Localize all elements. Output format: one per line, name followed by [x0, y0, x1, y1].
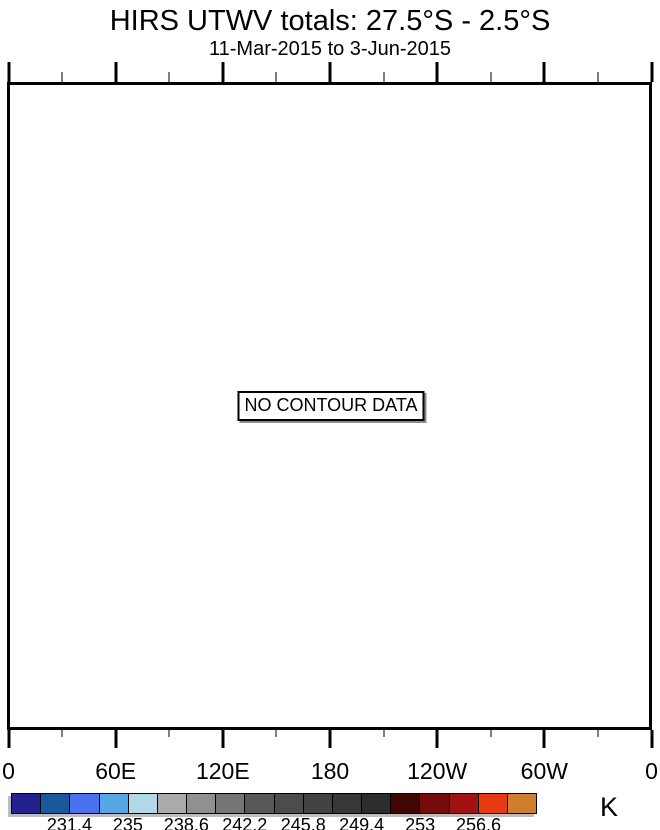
colorbar-tick-label: 231.4 [47, 815, 92, 830]
axis-major-tick [329, 730, 332, 748]
x-axis-tick-label: 120E [196, 758, 250, 785]
colorbar-unit-label: K [600, 792, 618, 823]
plot-page: HIRS UTWV totals: 27.5°S - 2.5°S 11-Mar-… [0, 0, 660, 830]
axis-major-tick [543, 730, 546, 748]
axis-minor-tick [490, 730, 492, 737]
axis-major-tick [329, 62, 332, 82]
colorbar-swatch [303, 793, 333, 814]
colorbar-swatch [478, 793, 508, 814]
axis-major-tick [436, 730, 439, 748]
colorbar-tick-label: 256.6 [456, 815, 501, 830]
x-axis-tick-label: 60W [521, 758, 568, 785]
axis-minor-tick [168, 72, 170, 82]
x-axis-tick-label: 120W [407, 758, 467, 785]
colorbar-swatch [215, 793, 245, 814]
colorbar-swatch [69, 793, 99, 814]
colorbar-swatch [128, 793, 158, 814]
colorbar-swatch [157, 793, 187, 814]
axis-major-tick [543, 62, 546, 82]
colorbar-swatch [244, 793, 274, 814]
colorbar [11, 793, 537, 814]
axis-major-tick [221, 62, 224, 82]
colorbar-labels: 231.4235238.6242.2245.8249.4253256.6 [11, 815, 537, 830]
axis-major-tick [221, 730, 224, 748]
axis-major-tick [7, 62, 10, 82]
colorbar-swatch [274, 793, 304, 814]
colorbar-tick-label: 242.2 [222, 815, 267, 830]
colorbar-swatch [419, 793, 449, 814]
axis-minor-tick [61, 72, 63, 82]
axis-major-tick [436, 62, 439, 82]
colorbar-swatch [507, 793, 537, 814]
axis-minor-tick [490, 72, 492, 82]
axis-major-tick [114, 62, 117, 82]
x-axis-tick-label: 60E [95, 758, 136, 785]
colorbar-tick-label: 235 [113, 815, 143, 830]
axis-minor-tick [61, 730, 63, 737]
axis-major-tick [650, 62, 653, 82]
colorbar-swatch [11, 793, 41, 814]
x-axis-labels: 060E120E180120W60W0 [9, 758, 652, 784]
axis-major-tick [7, 730, 10, 748]
axis-minor-tick [383, 72, 385, 82]
axis-major-tick [114, 730, 117, 748]
x-axis-tick-label: 0 [645, 758, 658, 785]
no-contour-data-box: NO CONTOUR DATA [237, 391, 424, 421]
axis-minor-tick [597, 72, 599, 82]
x-axis-tick-label: 180 [311, 758, 349, 785]
colorbar-tick-label: 249.4 [339, 815, 384, 830]
colorbar-swatch [99, 793, 129, 814]
colorbar-tick-label: 253 [405, 815, 435, 830]
colorbar-tick-label: 238.6 [164, 815, 209, 830]
colorbar-swatch [390, 793, 420, 814]
chart-title: HIRS UTWV totals: 27.5°S - 2.5°S [0, 5, 660, 38]
colorbar-tick-label: 245.8 [281, 815, 326, 830]
colorbar-swatch [40, 793, 70, 814]
axis-minor-tick [383, 730, 385, 737]
axis-minor-tick [168, 730, 170, 737]
chart-subtitle: 11-Mar-2015 to 3-Jun-2015 [0, 38, 660, 61]
x-axis-tick-label: 0 [2, 758, 15, 785]
colorbar-swatch [332, 793, 362, 814]
colorbar-swatch [361, 793, 391, 814]
colorbar-swatch [186, 793, 216, 814]
axis-minor-tick [275, 730, 277, 737]
colorbar-swatch [449, 793, 479, 814]
axis-major-tick [650, 730, 653, 748]
axis-minor-tick [275, 72, 277, 82]
axis-minor-tick [597, 730, 599, 737]
